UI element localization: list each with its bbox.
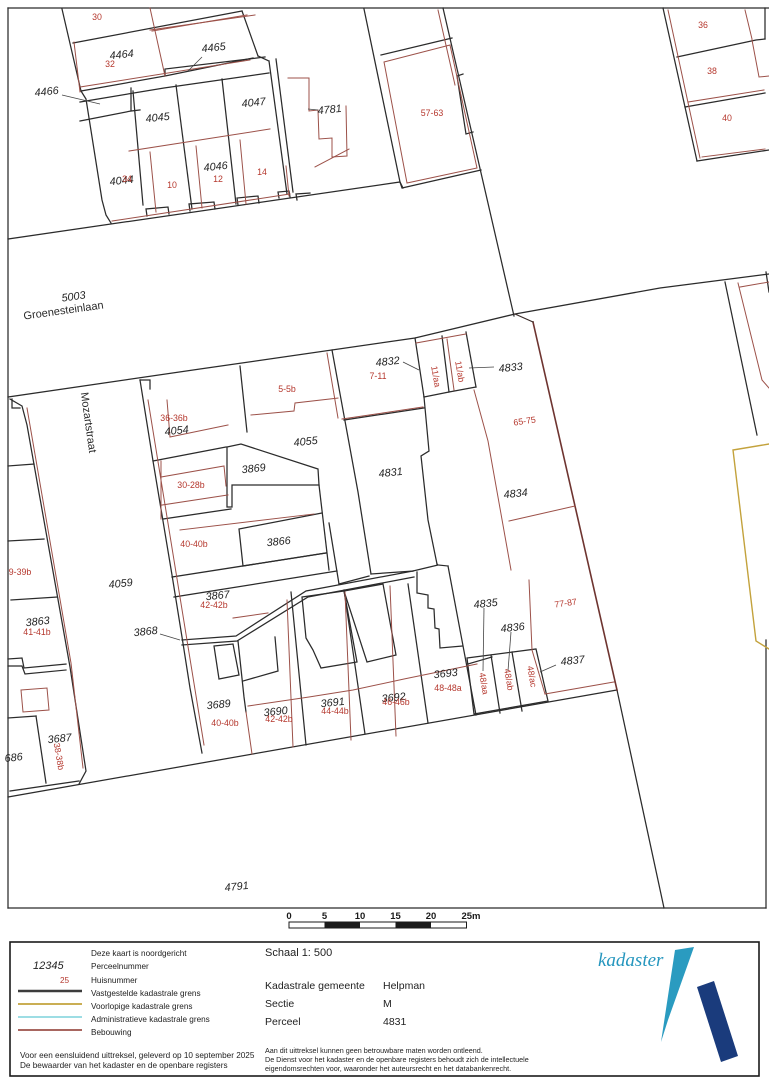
svg-text:25m: 25m [461, 911, 480, 922]
svg-text:36-36b: 36-36b [160, 413, 187, 423]
svg-text:Perceel: Perceel [265, 1016, 301, 1028]
svg-text:44-44b: 44-44b [321, 706, 348, 716]
svg-text:0: 0 [286, 911, 291, 922]
svg-text:Huisnummer: Huisnummer [91, 976, 138, 985]
svg-text:Voor een eensluidend uittrekse: Voor een eensluidend uittreksel, gelever… [20, 1051, 255, 1060]
svg-text:38: 38 [707, 66, 717, 76]
svg-text:3869: 3869 [241, 462, 266, 476]
svg-text:Voorlopige kadastrale grens: Voorlopige kadastrale grens [91, 1002, 193, 1011]
svg-text:Bebouwing: Bebouwing [91, 1028, 132, 1037]
svg-text:42-42b: 42-42b [265, 714, 292, 724]
svg-text:41-41b: 41-41b [23, 627, 50, 637]
svg-text:10: 10 [355, 911, 366, 922]
svg-text:30-28b: 30-28b [177, 480, 204, 490]
svg-text:40-40b: 40-40b [211, 718, 238, 728]
svg-text:4832: 4832 [375, 355, 400, 369]
svg-text:57-63: 57-63 [421, 108, 444, 118]
svg-text:40-40b: 40-40b [180, 539, 207, 549]
svg-text:4831: 4831 [383, 1016, 407, 1028]
svg-text:4831: 4831 [378, 466, 403, 480]
svg-text:3693: 3693 [433, 667, 458, 681]
svg-text:Administratieve kadastrale gre: Administratieve kadastrale grens [91, 1015, 210, 1024]
svg-text:686: 686 [4, 751, 23, 765]
svg-text:32: 32 [105, 59, 115, 69]
svg-text:7-11: 7-11 [370, 371, 387, 381]
svg-text:Helpman: Helpman [383, 980, 425, 992]
svg-text:De bewaarder van het kadaster: De bewaarder van het kadaster en de open… [20, 1061, 228, 1070]
svg-text:4791: 4791 [224, 880, 249, 894]
svg-text:4833: 4833 [498, 361, 523, 375]
svg-text:Deze kaart is noordgericht: Deze kaart is noordgericht [91, 949, 187, 958]
svg-text:14: 14 [257, 167, 267, 177]
svg-text:30: 30 [92, 12, 102, 22]
svg-text:36: 36 [698, 20, 708, 30]
svg-text:Perceelnummer: Perceelnummer [91, 962, 149, 971]
svg-text:12345: 12345 [33, 960, 64, 972]
svg-text:3868: 3868 [133, 625, 158, 639]
svg-text:4781: 4781 [317, 103, 342, 117]
svg-text:3689: 3689 [206, 698, 231, 712]
svg-text:Aan dit uittreksel kunnen geen: Aan dit uittreksel kunnen geen betrouwba… [265, 1046, 483, 1055]
svg-text:4054: 4054 [164, 424, 189, 438]
svg-text:15: 15 [390, 911, 401, 922]
svg-text:Kadastrale gemeente: Kadastrale gemeente [265, 980, 365, 992]
svg-text:5-5b: 5-5b [278, 384, 296, 394]
svg-text:Sectie: Sectie [265, 998, 294, 1010]
svg-text:5: 5 [322, 911, 328, 922]
svg-text:4836: 4836 [500, 621, 525, 635]
svg-text:9-39b: 9-39b [9, 567, 32, 577]
svg-text:40: 40 [722, 113, 732, 123]
svg-text:eigendomsrechten voor, waarond: eigendomsrechten voor, waaronder het aut… [265, 1064, 511, 1073]
svg-text:4059: 4059 [108, 577, 133, 591]
svg-text:25: 25 [60, 976, 70, 985]
svg-text:kadaster: kadaster [598, 950, 664, 971]
svg-text:10: 10 [167, 180, 177, 190]
svg-text:M: M [383, 998, 392, 1010]
svg-text:Vastgestelde kadastrale grens: Vastgestelde kadastrale grens [91, 989, 201, 998]
svg-text:12: 12 [213, 174, 223, 184]
svg-text:De Dienst voor het kadaster en: De Dienst voor het kadaster en de openba… [265, 1055, 529, 1064]
svg-text:46-46b: 46-46b [382, 697, 409, 707]
svg-text:20: 20 [426, 911, 437, 922]
svg-text:4046: 4046 [203, 160, 228, 174]
svg-text:48-48a: 48-48a [434, 683, 461, 693]
svg-text:3866: 3866 [266, 535, 291, 549]
svg-text:34: 34 [122, 174, 132, 184]
svg-text:4834: 4834 [503, 487, 528, 501]
svg-text:42-42b: 42-42b [200, 600, 227, 610]
svg-text:4466: 4466 [34, 85, 59, 99]
svg-text:Schaal 1: 500: Schaal 1: 500 [265, 947, 332, 959]
